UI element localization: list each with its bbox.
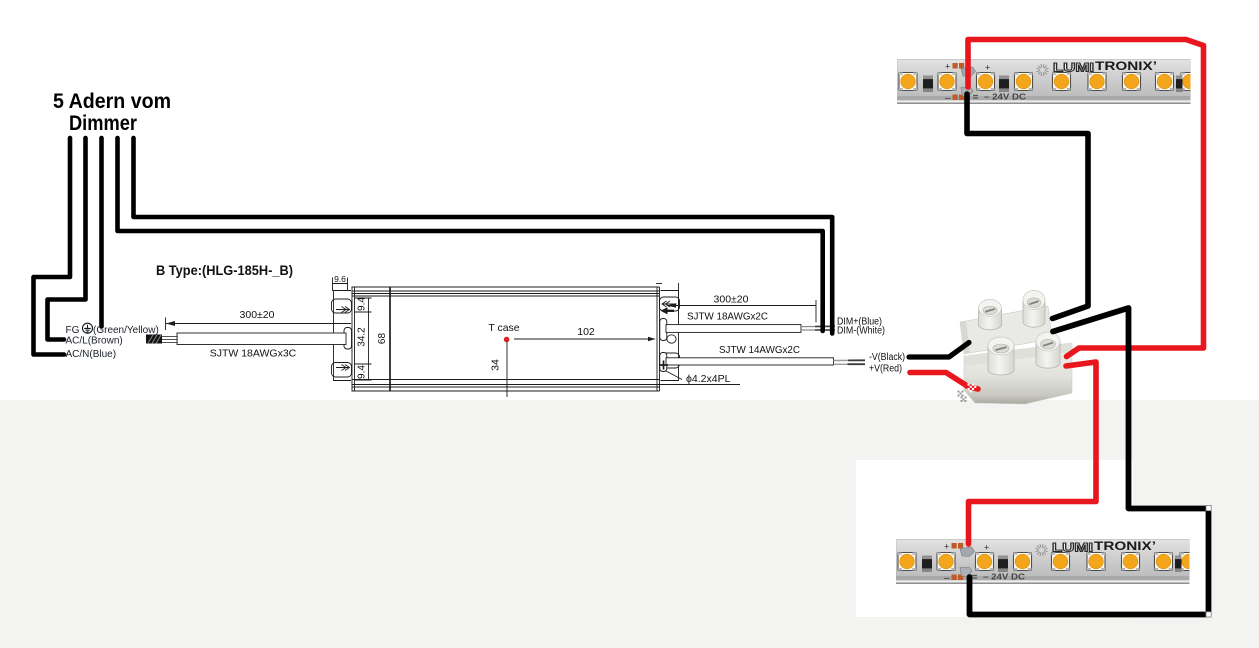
svg-text:ϕ4.2x4PL: ϕ4.2x4PL — [686, 373, 731, 385]
svg-text:9.4: 9.4 — [357, 365, 368, 379]
svg-text:102: 102 — [577, 326, 595, 338]
svg-text:9.4: 9.4 — [357, 297, 368, 311]
svg-text:300±20: 300±20 — [240, 309, 275, 321]
svg-text:DIM-(White): DIM-(White) — [837, 326, 885, 337]
svg-text:68: 68 — [377, 333, 388, 345]
svg-text:SJTW 14AWGx2C: SJTW 14AWGx2C — [719, 345, 800, 356]
svg-text:SJTW 18AWGx3C: SJTW 18AWGx3C — [210, 348, 297, 360]
svg-text:34.2: 34.2 — [357, 327, 368, 347]
svg-text:FG: FG — [66, 325, 80, 336]
svg-text:AC/N(Blue): AC/N(Blue) — [66, 349, 117, 360]
svg-text:-V(Black): -V(Black) — [869, 352, 905, 363]
svg-text:300±20: 300±20 — [714, 294, 749, 306]
svg-text:B Type:(HLG-185H-_B): B Type:(HLG-185H-_B) — [156, 263, 293, 278]
svg-text:Dimmer: Dimmer — [69, 111, 138, 135]
svg-text:AC/L(Brown): AC/L(Brown) — [66, 336, 123, 347]
svg-text:34: 34 — [490, 359, 502, 371]
svg-text:+V(Red): +V(Red) — [869, 363, 902, 374]
svg-text:T case: T case — [488, 322, 519, 334]
svg-text:SJTW 18AWGx2C: SJTW 18AWGx2C — [687, 312, 768, 323]
svg-text:9.6: 9.6 — [334, 274, 346, 284]
svg-text:5 Adern vom: 5 Adern vom — [53, 89, 171, 113]
